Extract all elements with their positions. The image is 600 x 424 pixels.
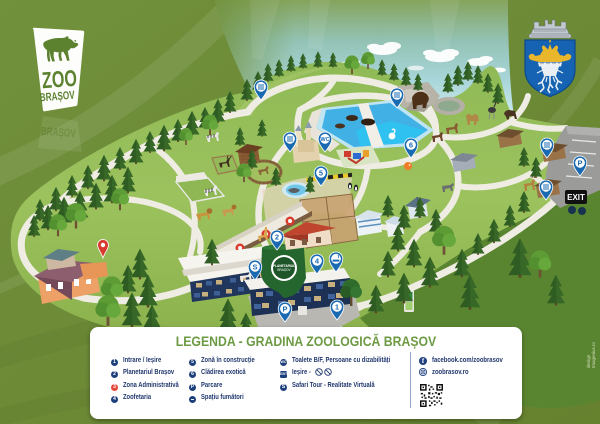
svg-text:P: P (577, 158, 582, 167)
svg-text:6: 6 (409, 140, 413, 149)
svg-text:5: 5 (319, 168, 323, 177)
svg-text:S: S (252, 262, 257, 271)
svg-text:P: P (282, 304, 287, 313)
svg-text:WC: WC (321, 137, 330, 143)
svg-text:EXIT: EXIT (567, 193, 585, 202)
svg-text:BRAȘOV: BRAȘOV (277, 268, 291, 272)
svg-text:1: 1 (335, 302, 339, 311)
svg-text:BRAȘOV: BRAȘOV (40, 126, 76, 140)
svg-text:2: 2 (275, 232, 279, 241)
